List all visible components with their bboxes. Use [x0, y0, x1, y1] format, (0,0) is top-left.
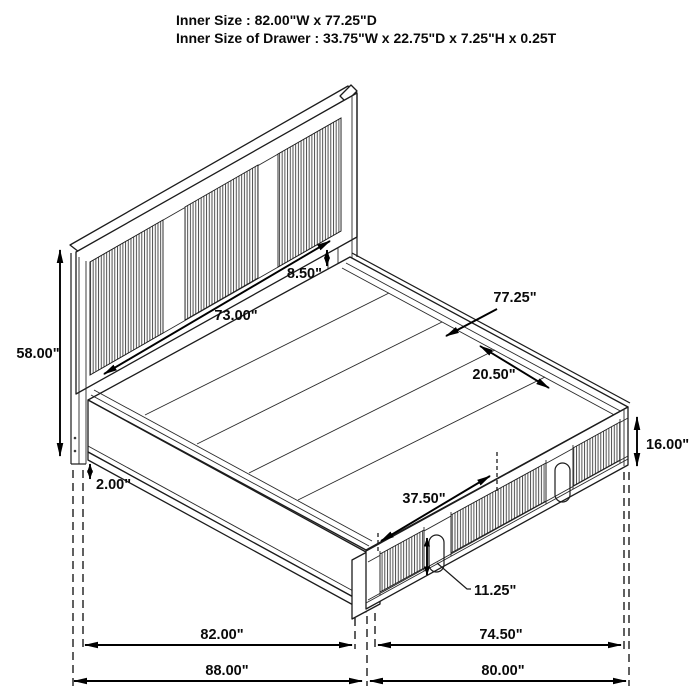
dim-headboard-height: 58.00" [16, 250, 60, 456]
title-block: Inner Size : 82.00"W x 77.25"D Inner Siz… [176, 12, 557, 46]
dim-headboard-width-label: 73.00" [214, 308, 257, 324]
dim-deck-panel-depth-label: 20.50" [472, 367, 515, 383]
dim-overall-depth-label: 80.00" [481, 663, 524, 679]
dim-footboard-width-label: 74.50" [479, 627, 522, 643]
dim-headboard-height-label: 58.00" [16, 346, 59, 362]
mounting-hole [74, 450, 77, 453]
dim-deck-gap-label: 8.50" [287, 266, 322, 282]
dim-platform-depth-label: 77.25" [493, 290, 536, 306]
dim-overall-width-label: 88.00" [205, 663, 248, 679]
title-inner-size: Inner Size : 82.00"W x 77.25"D [176, 12, 377, 28]
dim-overall-depth: 80.00" [370, 663, 626, 681]
dim-overall-width: 88.00" [74, 663, 362, 681]
dim-footboard-width: 74.50" [378, 627, 621, 645]
diagram-canvas: Inner Size : 82.00"W x 77.25"D Inner Siz… [0, 0, 700, 700]
dim-footboard-height: 16.00" [637, 417, 689, 466]
dim-footboard-height-label: 16.00" [646, 437, 689, 453]
dim-drawer-handle-height-label: 11.25" [474, 583, 516, 599]
dim-inner-width: 82.00" [85, 627, 352, 645]
dim-inner-width-label: 82.00" [200, 627, 243, 643]
dim-drawer-front-width-label: 37.50" [402, 491, 445, 507]
bed-dimension-diagram-page: Inner Size : 82.00"W x 77.25"D Inner Siz… [0, 0, 700, 700]
title-drawer-size: Inner Size of Drawer : 33.75"W x 22.75"D… [176, 30, 557, 46]
handle-leader-line [437, 563, 471, 589]
mounting-hole [74, 437, 77, 440]
dim-floor-clearance-label: 2.00" [96, 477, 131, 493]
dim-platform-depth: 77.25" [446, 290, 537, 336]
